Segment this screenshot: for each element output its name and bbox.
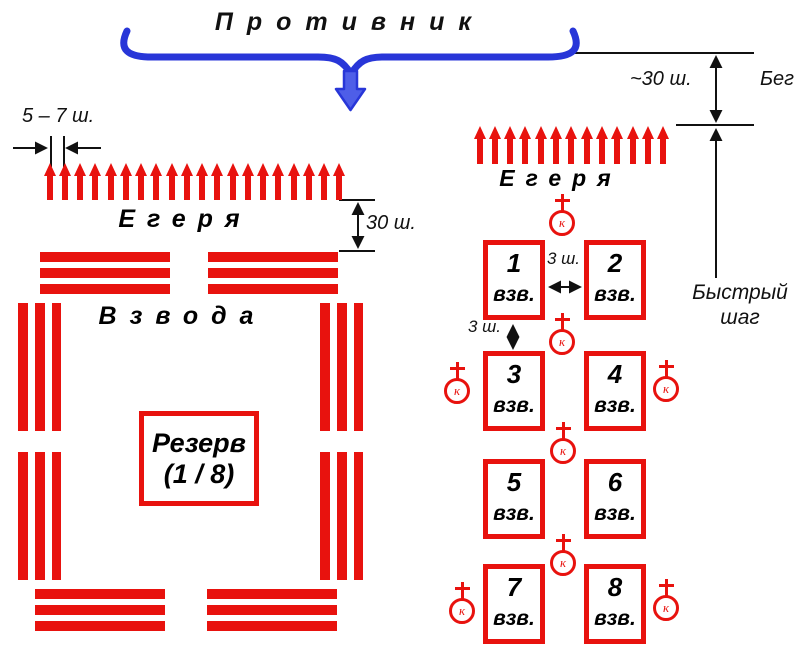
skirmisher-arrow-icon <box>534 126 547 164</box>
skirmisher-arrow-icon <box>642 126 655 164</box>
cross-icon <box>658 360 675 379</box>
left-depth-label: 30 ш. <box>366 212 416 235</box>
platoon-box-1: 1взв. <box>483 240 545 320</box>
left-skirmisher-line <box>43 163 346 200</box>
skirmisher-arrow-icon <box>226 163 239 200</box>
skirmisher-arrow-icon <box>104 163 117 200</box>
right-upper-platoon-bars <box>320 303 363 431</box>
cross-icon <box>554 313 571 332</box>
skirmisher-arrow-icon <box>43 163 56 200</box>
skirmisher-arrow-icon <box>119 163 132 200</box>
platoon-number: 3 <box>488 359 540 389</box>
cross-icon <box>454 582 471 601</box>
skirmisher-arrow-icon <box>241 163 254 200</box>
commander-icon: к <box>653 376 679 402</box>
platoon-box-5: 5взв. <box>483 459 545 539</box>
skirmisher-arrow-icon <box>626 126 639 164</box>
right-lower-platoon-bars <box>320 452 363 580</box>
skirmisher-arrow-icon <box>504 126 517 164</box>
left-lower-platoon-bars <box>18 452 61 580</box>
cross-icon <box>449 362 466 381</box>
skirmisher-arrow-icon <box>565 126 578 164</box>
commander-marker: к <box>548 534 578 576</box>
gap-vertical-label: 3 ш. <box>468 317 501 337</box>
commander-marker: к <box>548 422 578 464</box>
platoon-box-3: 3взв. <box>483 351 545 431</box>
reserve-box: Резерв (1 / 8) <box>139 411 259 506</box>
commander-icon: к <box>444 378 470 404</box>
skirmisher-arrow-icon <box>211 163 224 200</box>
gap-horizontal-label: 3 ш. <box>547 249 580 269</box>
tactical-diagram: Противник ~30 ш. Бег Быстрый шаг 5 – 7 ш… <box>0 0 807 650</box>
skirmisher-arrow-icon <box>488 126 501 164</box>
right-jaeger-label: Егеря <box>468 165 653 192</box>
skirmisher-arrow-icon <box>135 163 148 200</box>
skirmisher-arrow-icon <box>165 163 178 200</box>
platoon-box-8: 8взв. <box>584 564 646 644</box>
commander-marker: к <box>447 582 477 624</box>
skirmisher-arrow-icon <box>287 163 300 200</box>
commander-marker: к <box>442 362 472 404</box>
skirmisher-spacing-label: 5 – 7 ш. <box>22 105 94 128</box>
platoon-label: взв. <box>488 501 540 527</box>
left-platoons-label: Взвода <box>75 302 290 331</box>
skirmisher-arrow-icon <box>473 126 486 164</box>
commander-marker: к <box>651 579 681 621</box>
cross-icon <box>555 422 572 441</box>
run-label: Бег <box>760 68 794 91</box>
platoon-label: взв. <box>589 606 641 632</box>
commander-icon: к <box>550 438 576 464</box>
platoon-box-7: 7взв. <box>483 564 545 644</box>
fast-step-line2: шаг <box>680 305 800 330</box>
cross-icon <box>658 579 675 598</box>
skirmisher-arrow-icon <box>318 163 331 200</box>
platoon-label: взв. <box>488 393 540 419</box>
reserve-line1: Резерв <box>152 428 246 458</box>
top-left-platoon-bars <box>40 252 170 294</box>
commander-marker: к <box>651 360 681 402</box>
skirmisher-arrow-icon <box>196 163 209 200</box>
skirmisher-arrow-icon <box>272 163 285 200</box>
platoon-box-2: 2взв. <box>584 240 646 320</box>
skirmisher-arrow-icon <box>611 126 624 164</box>
platoon-number: 6 <box>589 467 641 497</box>
skirmisher-arrow-icon <box>657 126 670 164</box>
fast-step-label: Быстрый шаг <box>680 280 800 330</box>
commander-icon: к <box>449 598 475 624</box>
commander-icon: к <box>653 595 679 621</box>
skirmisher-arrow-icon <box>257 163 270 200</box>
platoon-box-4: 4взв. <box>584 351 646 431</box>
left-jaeger-label: Егеря <box>95 205 275 234</box>
platoon-number: 2 <box>589 248 641 278</box>
skirmisher-arrow-icon <box>519 126 532 164</box>
left-upper-platoon-bars <box>18 303 61 431</box>
commander-marker: к <box>547 313 577 355</box>
platoon-label: взв. <box>589 282 641 308</box>
commander-icon: к <box>549 329 575 355</box>
reserve-line2: (1 / 8) <box>164 459 235 489</box>
top-right-platoon-bars <box>208 252 338 294</box>
skirmisher-arrow-icon <box>74 163 87 200</box>
enemy-label: Противник <box>160 8 540 37</box>
platoon-box-6: 6взв. <box>584 459 646 539</box>
skirmisher-arrow-icon <box>150 163 163 200</box>
bottom-left-platoon-bars <box>35 589 165 631</box>
cross-icon <box>554 194 571 213</box>
attack-arrow-icon <box>336 71 365 110</box>
skirmisher-arrow-icon <box>596 126 609 164</box>
platoon-number: 5 <box>488 467 540 497</box>
skirmisher-arrow-icon <box>302 163 315 200</box>
platoon-number: 1 <box>488 248 540 278</box>
right-skirmisher-line <box>473 126 670 164</box>
skirmisher-arrow-icon <box>550 126 563 164</box>
skirmisher-arrow-icon <box>58 163 71 200</box>
platoon-label: взв. <box>488 282 540 308</box>
enemy-brace <box>124 31 577 74</box>
bottom-right-platoon-bars <box>207 589 337 631</box>
platoon-number: 7 <box>488 572 540 602</box>
platoon-number: 8 <box>589 572 641 602</box>
platoon-label: взв. <box>488 606 540 632</box>
skirmisher-arrow-icon <box>89 163 102 200</box>
skirmisher-arrow-icon <box>333 163 346 200</box>
platoon-label: взв. <box>589 501 641 527</box>
commander-marker: к <box>547 194 577 236</box>
platoon-number: 4 <box>589 359 641 389</box>
fast-step-line1: Быстрый <box>680 280 800 305</box>
skirmisher-arrow-icon <box>580 126 593 164</box>
approach-distance-label: ~30 ш. <box>630 68 692 91</box>
platoon-label: взв. <box>589 393 641 419</box>
commander-icon: к <box>549 210 575 236</box>
skirmisher-arrow-icon <box>180 163 193 200</box>
cross-icon <box>555 534 572 553</box>
commander-icon: к <box>550 550 576 576</box>
